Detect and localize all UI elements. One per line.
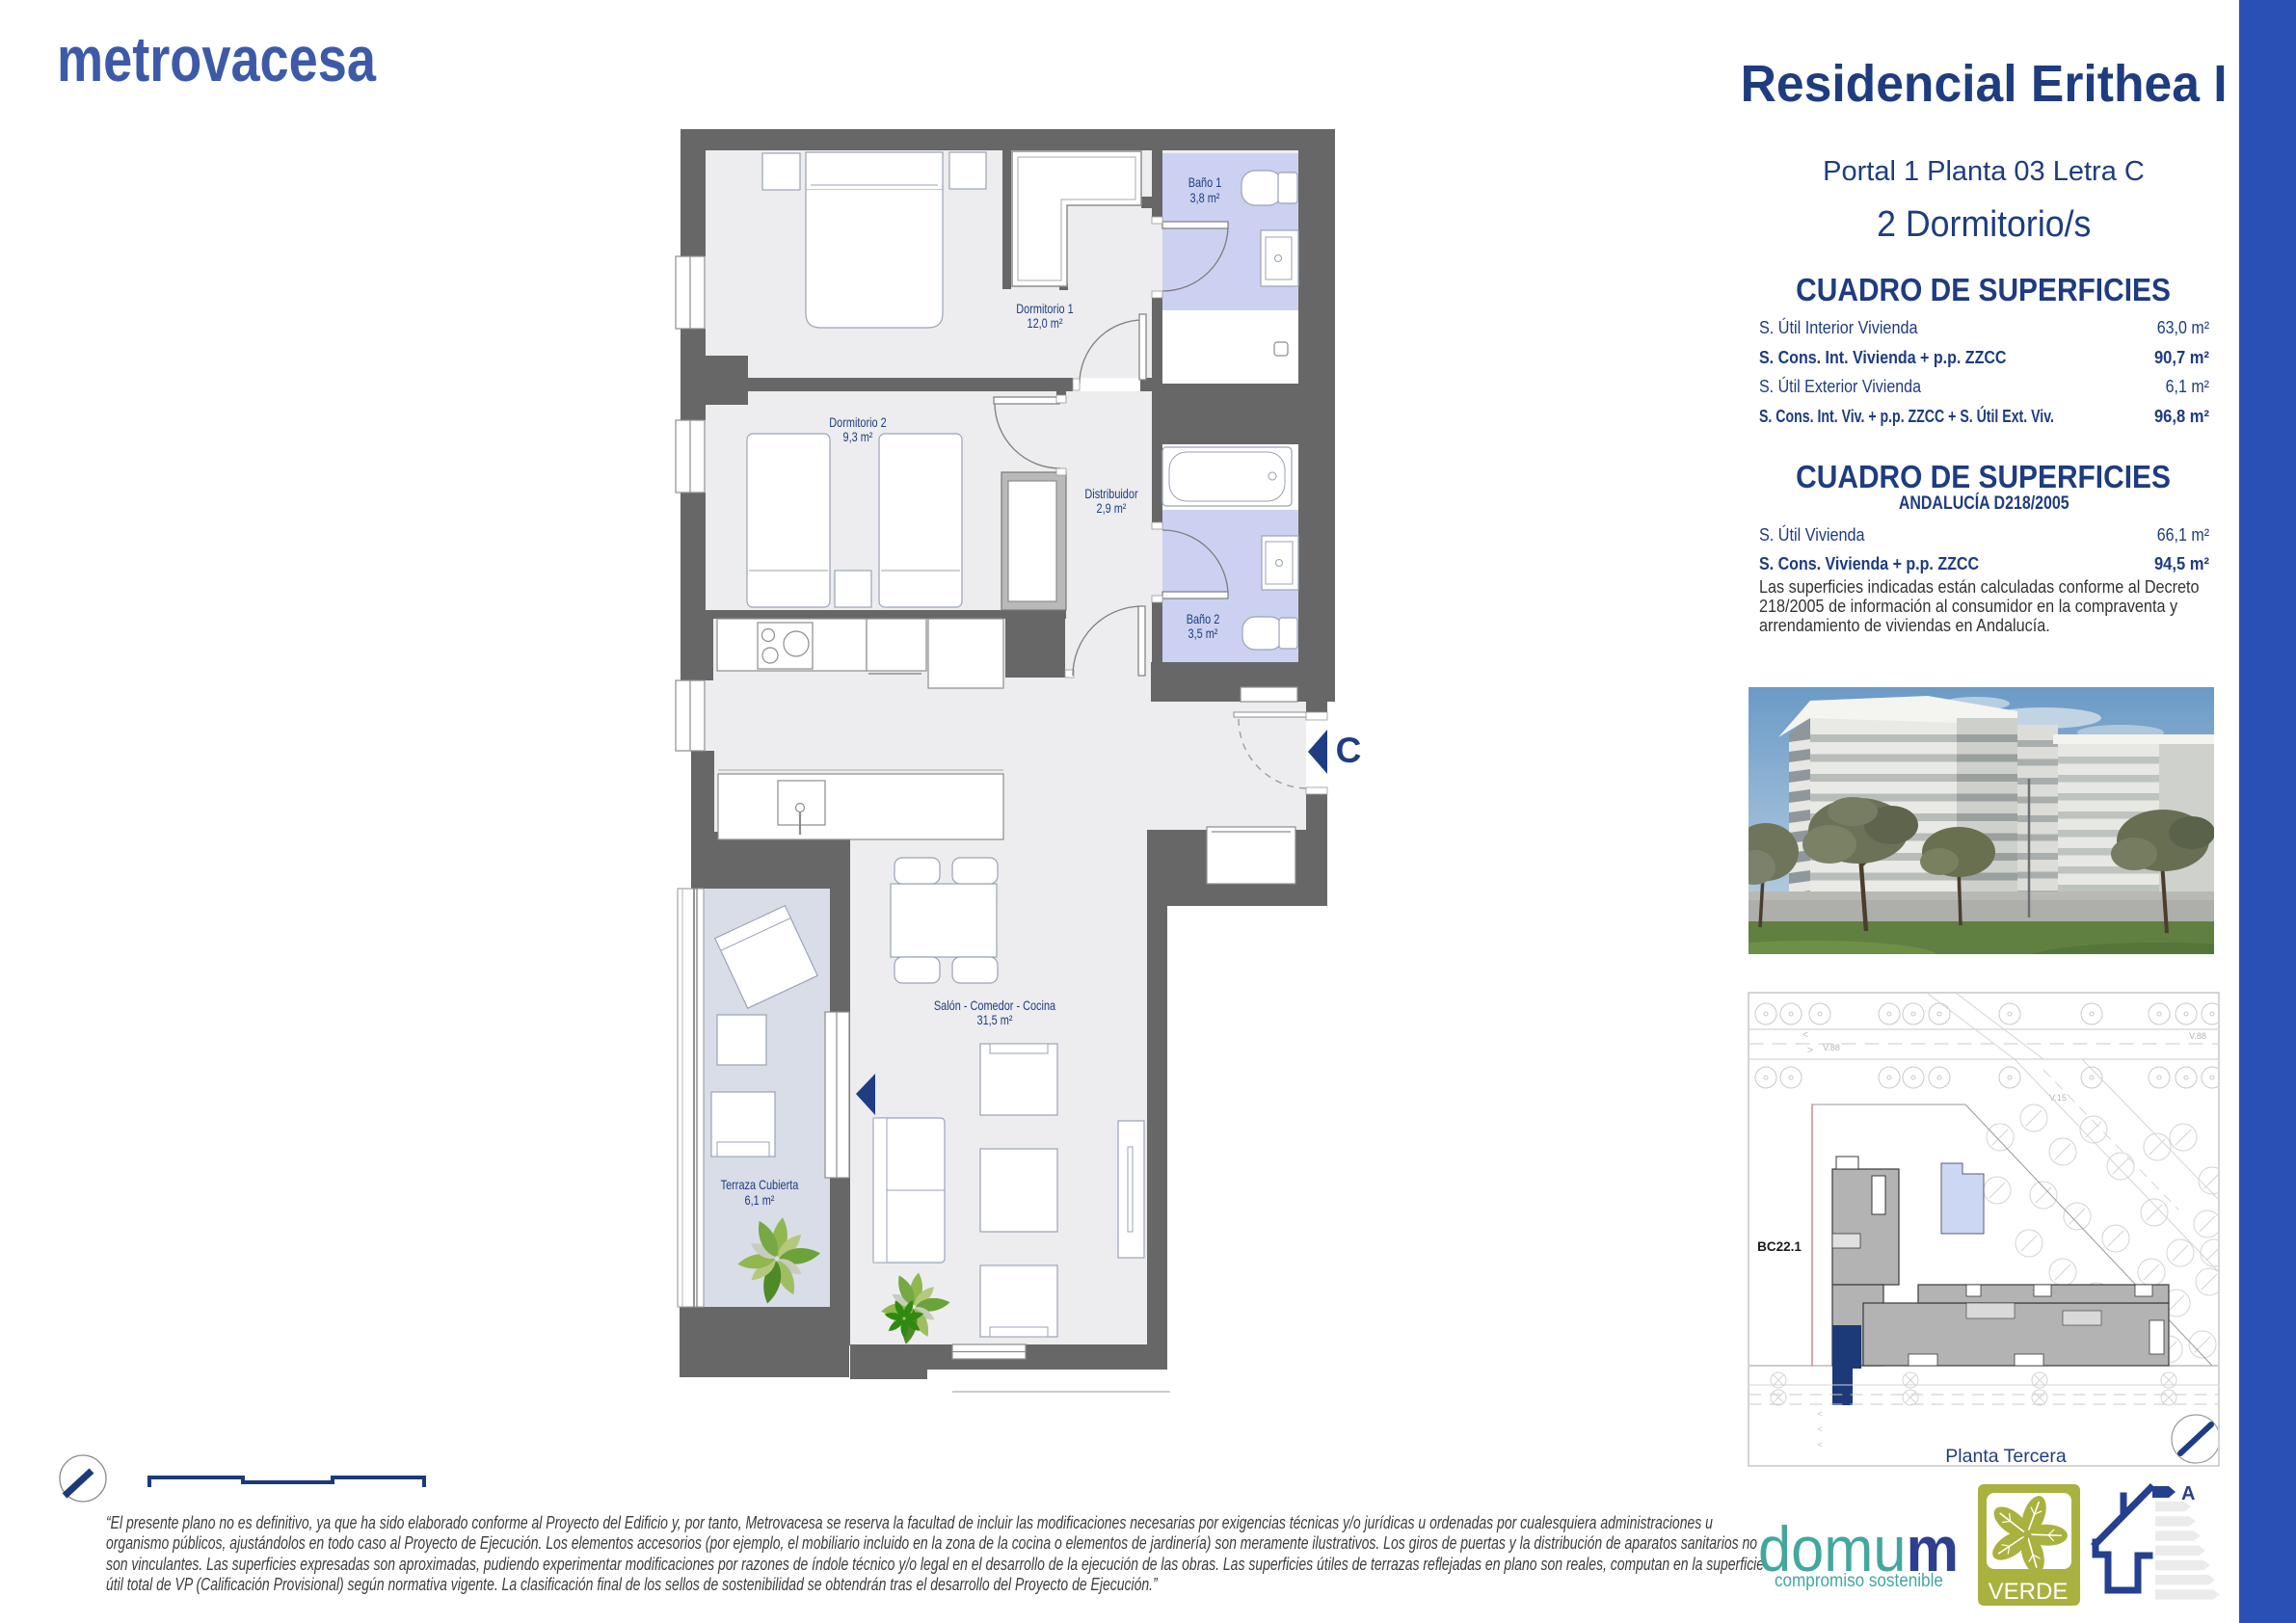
svg-text:6,1 m²: 6,1 m²: [745, 1192, 775, 1208]
svg-text:Distribuidor: Distribuidor: [1084, 486, 1137, 501]
svg-text:Dormitorio 2: Dormitorio 2: [829, 414, 887, 430]
svg-text:BC22.1: BC22.1: [1757, 1239, 1802, 1254]
svg-text:<: <: [1817, 1424, 1822, 1434]
svg-text:Baño 1: Baño 1: [1188, 174, 1222, 190]
svg-text:<: <: [1802, 1029, 1808, 1041]
svg-text:2,9 m²: 2,9 m²: [1097, 500, 1127, 516]
svg-text:3,8 m²: 3,8 m²: [1190, 190, 1220, 205]
svg-text:<: <: [1817, 1440, 1822, 1450]
svg-text:Terraza Cubierta: Terraza Cubierta: [721, 1177, 799, 1192]
svg-text:9,3 m²: 9,3 m²: [843, 429, 873, 444]
svg-text:12,0 m²: 12,0 m²: [1028, 315, 1063, 331]
svg-text:V.88: V.88: [1823, 1043, 1840, 1052]
svg-text:<: <: [1817, 1409, 1822, 1419]
svg-text:>: >: [1807, 1045, 1813, 1056]
svg-text:Planta Tercera: Planta Tercera: [1945, 1446, 2067, 1467]
svg-text:C: C: [1336, 731, 1362, 770]
svg-text:Baño 2: Baño 2: [1187, 611, 1220, 626]
svg-text:Salón - Comedor - Cocina: Salón - Comedor - Cocina: [934, 998, 1055, 1013]
svg-text:A: A: [2181, 1483, 2195, 1504]
svg-text:V.88: V.88: [2189, 1031, 2206, 1041]
svg-text:3,5 m²: 3,5 m²: [1188, 625, 1218, 641]
svg-text:Dormitorio 1: Dormitorio 1: [1016, 301, 1074, 316]
svg-text:VERDE: VERDE: [1989, 1579, 2069, 1605]
svg-text:31,5 m²: 31,5 m²: [977, 1012, 1013, 1027]
